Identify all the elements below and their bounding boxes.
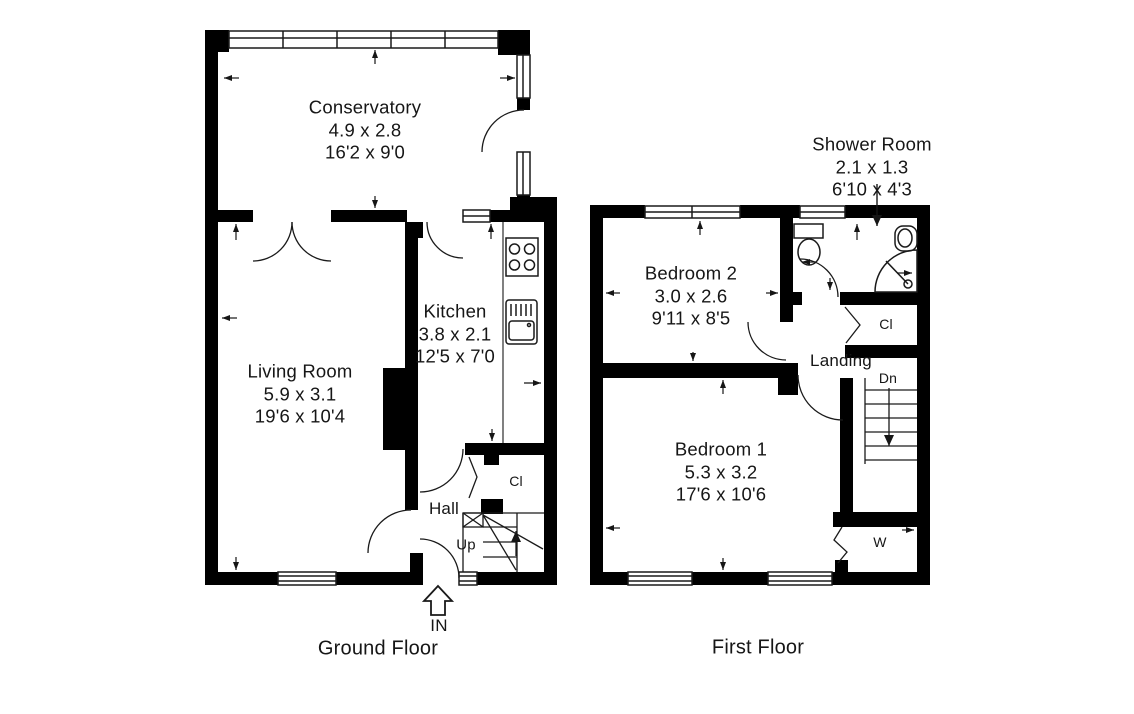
closet-door bbox=[469, 457, 477, 498]
room-name: Conservatory bbox=[309, 96, 421, 119]
room-label-shower-room: Shower Room 2.1 x 1.3 6'10 x 4'3 bbox=[812, 133, 931, 201]
toilet-icon bbox=[794, 224, 823, 265]
room-name: Kitchen bbox=[415, 300, 495, 323]
entrance-label: IN bbox=[430, 616, 447, 636]
kitchen-fixtures bbox=[503, 222, 538, 443]
room-size-imperial: 19'6 x 10'4 bbox=[247, 405, 352, 428]
room-size-metric: 5.9 x 3.1 bbox=[247, 383, 352, 406]
room-size-imperial: 6'10 x 4'3 bbox=[812, 178, 931, 201]
floorplan-drawing bbox=[0, 0, 1134, 714]
room-label-conservatory: Conservatory 4.9 x 2.8 16'2 x 9'0 bbox=[309, 96, 421, 164]
stairs-down-icon bbox=[865, 378, 917, 464]
bedroom2-door-arc bbox=[748, 322, 786, 360]
kitchen-door-arc bbox=[427, 222, 463, 258]
room-size-metric: 3.0 x 2.6 bbox=[645, 285, 737, 308]
wardrobe-label: W bbox=[873, 534, 886, 550]
room-size-metric: 2.1 x 1.3 bbox=[812, 156, 931, 179]
bedroom1-window bbox=[768, 572, 832, 585]
french-door-arc bbox=[292, 222, 331, 261]
conservatory-door-arc bbox=[482, 110, 524, 152]
floorplan-canvas: Conservatory 4.9 x 2.8 16'2 x 9'0 Living… bbox=[0, 0, 1134, 714]
first-floor-walls bbox=[590, 205, 930, 585]
chimney-breast bbox=[383, 368, 418, 450]
bedroom1-door-arc bbox=[798, 375, 843, 420]
room-size-metric: 4.9 x 2.8 bbox=[309, 119, 421, 142]
room-size-imperial: 17'6 x 10'6 bbox=[675, 483, 767, 506]
french-door-arc bbox=[253, 222, 292, 261]
stairs-down-label: Dn bbox=[879, 370, 897, 386]
hall-label: Hall bbox=[429, 499, 459, 519]
entrance-arrow-icon bbox=[424, 586, 452, 615]
hall-sidelight-window bbox=[459, 572, 477, 585]
room-name: Bedroom 2 bbox=[645, 262, 737, 285]
living-hall-door-arc bbox=[368, 510, 411, 553]
room-name: Shower Room bbox=[812, 133, 931, 156]
front-door-arc bbox=[420, 539, 459, 578]
sink-icon bbox=[506, 300, 537, 344]
room-name: Bedroom 1 bbox=[675, 438, 767, 461]
ground-floor-title: Ground Floor bbox=[318, 638, 438, 661]
room-size-imperial: 16'2 x 9'0 bbox=[309, 141, 421, 164]
room-size-imperial: 9'11 x 8'5 bbox=[645, 307, 737, 330]
basin-icon bbox=[895, 226, 917, 251]
bedroom1-window bbox=[628, 572, 692, 585]
room-name: Living Room bbox=[247, 360, 352, 383]
room-size-metric: 3.8 x 2.1 bbox=[415, 323, 495, 346]
room-size-imperial: 12'5 x 7'0 bbox=[415, 345, 495, 368]
room-label-bedroom-1: Bedroom 1 5.3 x 3.2 17'6 x 10'6 bbox=[675, 438, 767, 506]
shower-room-fixtures bbox=[794, 224, 917, 292]
conservatory-window bbox=[229, 31, 498, 48]
closet-door bbox=[845, 307, 860, 343]
living-room-window bbox=[278, 572, 336, 585]
room-size-metric: 5.3 x 3.2 bbox=[675, 461, 767, 484]
room-label-bedroom-2: Bedroom 2 3.0 x 2.6 9'11 x 8'5 bbox=[645, 262, 737, 330]
room-label-kitchen: Kitchen 3.8 x 2.1 12'5 x 7'0 bbox=[415, 300, 495, 368]
shower-icon bbox=[875, 250, 917, 292]
room-label-living-room: Living Room 5.9 x 3.1 19'6 x 10'4 bbox=[247, 360, 352, 428]
stove-icon bbox=[506, 238, 538, 276]
closet-label-ground: Cl bbox=[509, 473, 523, 489]
first-floor-title: First Floor bbox=[712, 637, 804, 660]
wardrobe-folding-door bbox=[834, 527, 847, 563]
landing-label: Landing bbox=[810, 351, 872, 371]
kitchen-hall-door-arc bbox=[420, 449, 463, 492]
closet-label-first: Cl bbox=[879, 316, 893, 332]
stairs-up-label: Up bbox=[456, 537, 476, 554]
